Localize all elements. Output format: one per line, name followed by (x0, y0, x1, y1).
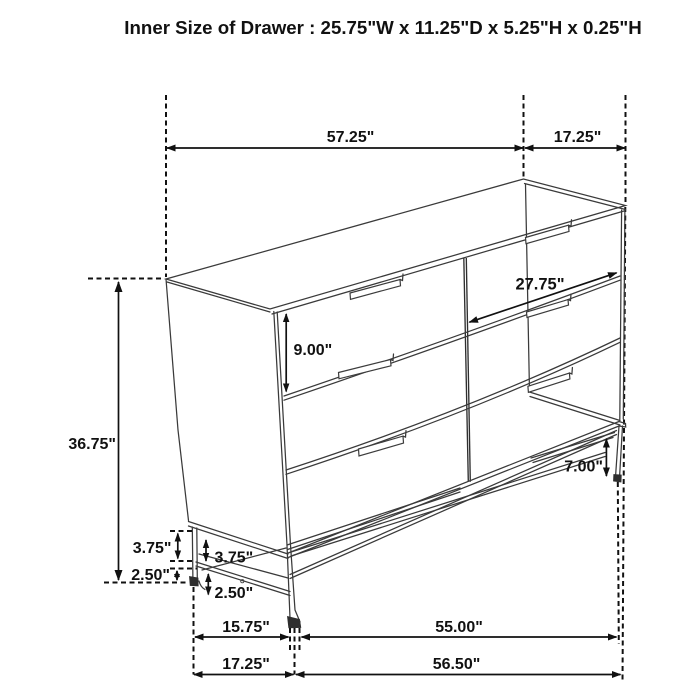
svg-text:57.25": 57.25" (327, 129, 375, 146)
svg-text:3.75": 3.75" (215, 550, 254, 567)
svg-text:2.50": 2.50" (215, 585, 254, 602)
svg-text:2.50": 2.50" (131, 567, 170, 584)
svg-text:27.75": 27.75" (515, 276, 564, 294)
svg-text:Inner Size of Drawer : 25.75"W: Inner Size of Drawer : 25.75"W x 11.25"D… (124, 17, 641, 38)
svg-text:17.25": 17.25" (554, 129, 602, 146)
svg-text:9.00": 9.00" (294, 342, 333, 359)
svg-text:56.50": 56.50" (433, 656, 481, 673)
svg-text:36.75": 36.75" (68, 436, 116, 453)
svg-text:15.75": 15.75" (222, 619, 270, 636)
svg-text:55.00": 55.00" (435, 619, 483, 636)
svg-text:7.00": 7.00" (564, 459, 603, 476)
svg-text:17.25": 17.25" (222, 656, 270, 673)
svg-text:3.75": 3.75" (133, 540, 172, 557)
